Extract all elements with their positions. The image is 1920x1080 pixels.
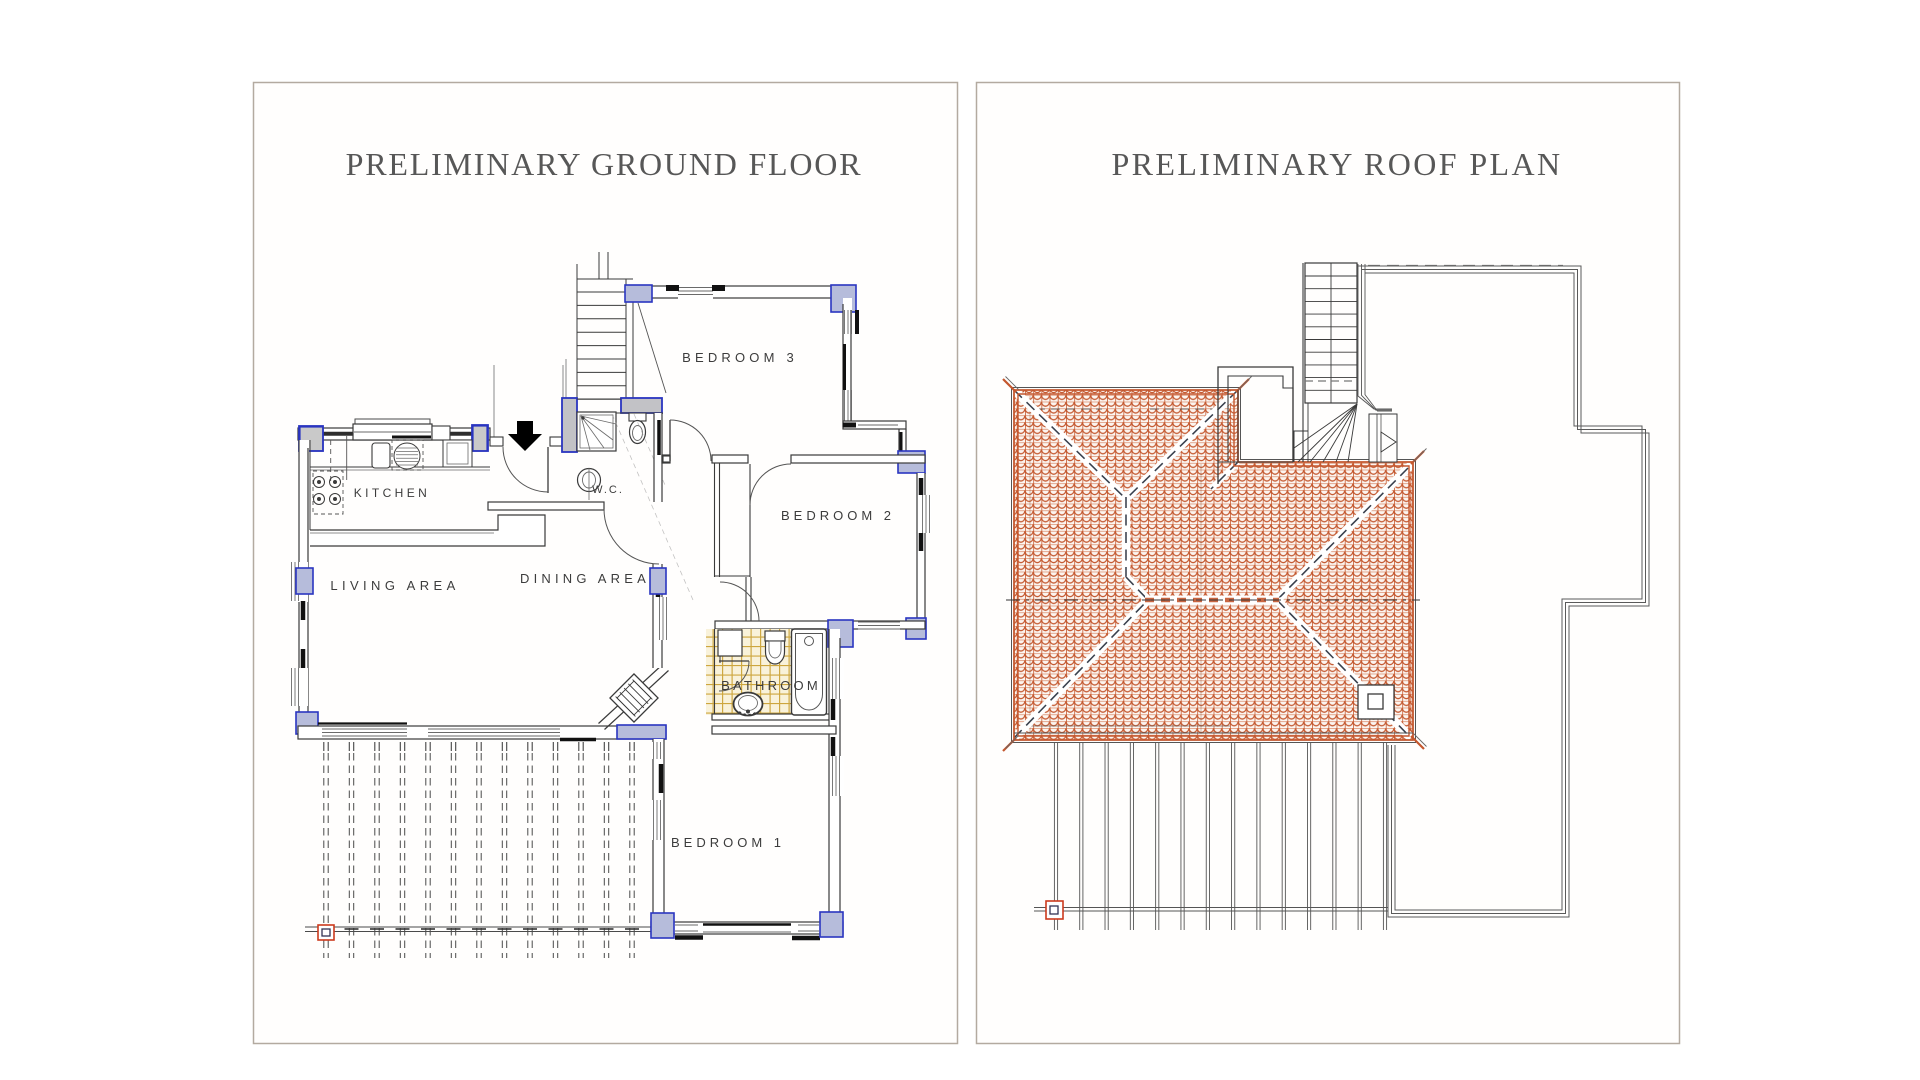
svg-text:BATHROOM: BATHROOM xyxy=(721,678,821,693)
svg-text:PRELIMINARY GROUND FLOOR: PRELIMINARY GROUND FLOOR xyxy=(346,146,863,182)
svg-text:KITCHEN: KITCHEN xyxy=(354,486,430,500)
svg-text:BEDROOM 1: BEDROOM 1 xyxy=(671,835,785,850)
svg-text:LIVING AREA: LIVING AREA xyxy=(330,578,459,593)
svg-text:BEDROOM 3: BEDROOM 3 xyxy=(682,350,798,365)
svg-text:W.C.: W.C. xyxy=(592,484,624,496)
svg-text:PRELIMINARY ROOF PLAN: PRELIMINARY ROOF PLAN xyxy=(1111,146,1562,182)
svg-text:BEDROOM 2: BEDROOM 2 xyxy=(781,508,895,523)
svg-text:DINING AREA: DINING AREA xyxy=(520,571,650,586)
